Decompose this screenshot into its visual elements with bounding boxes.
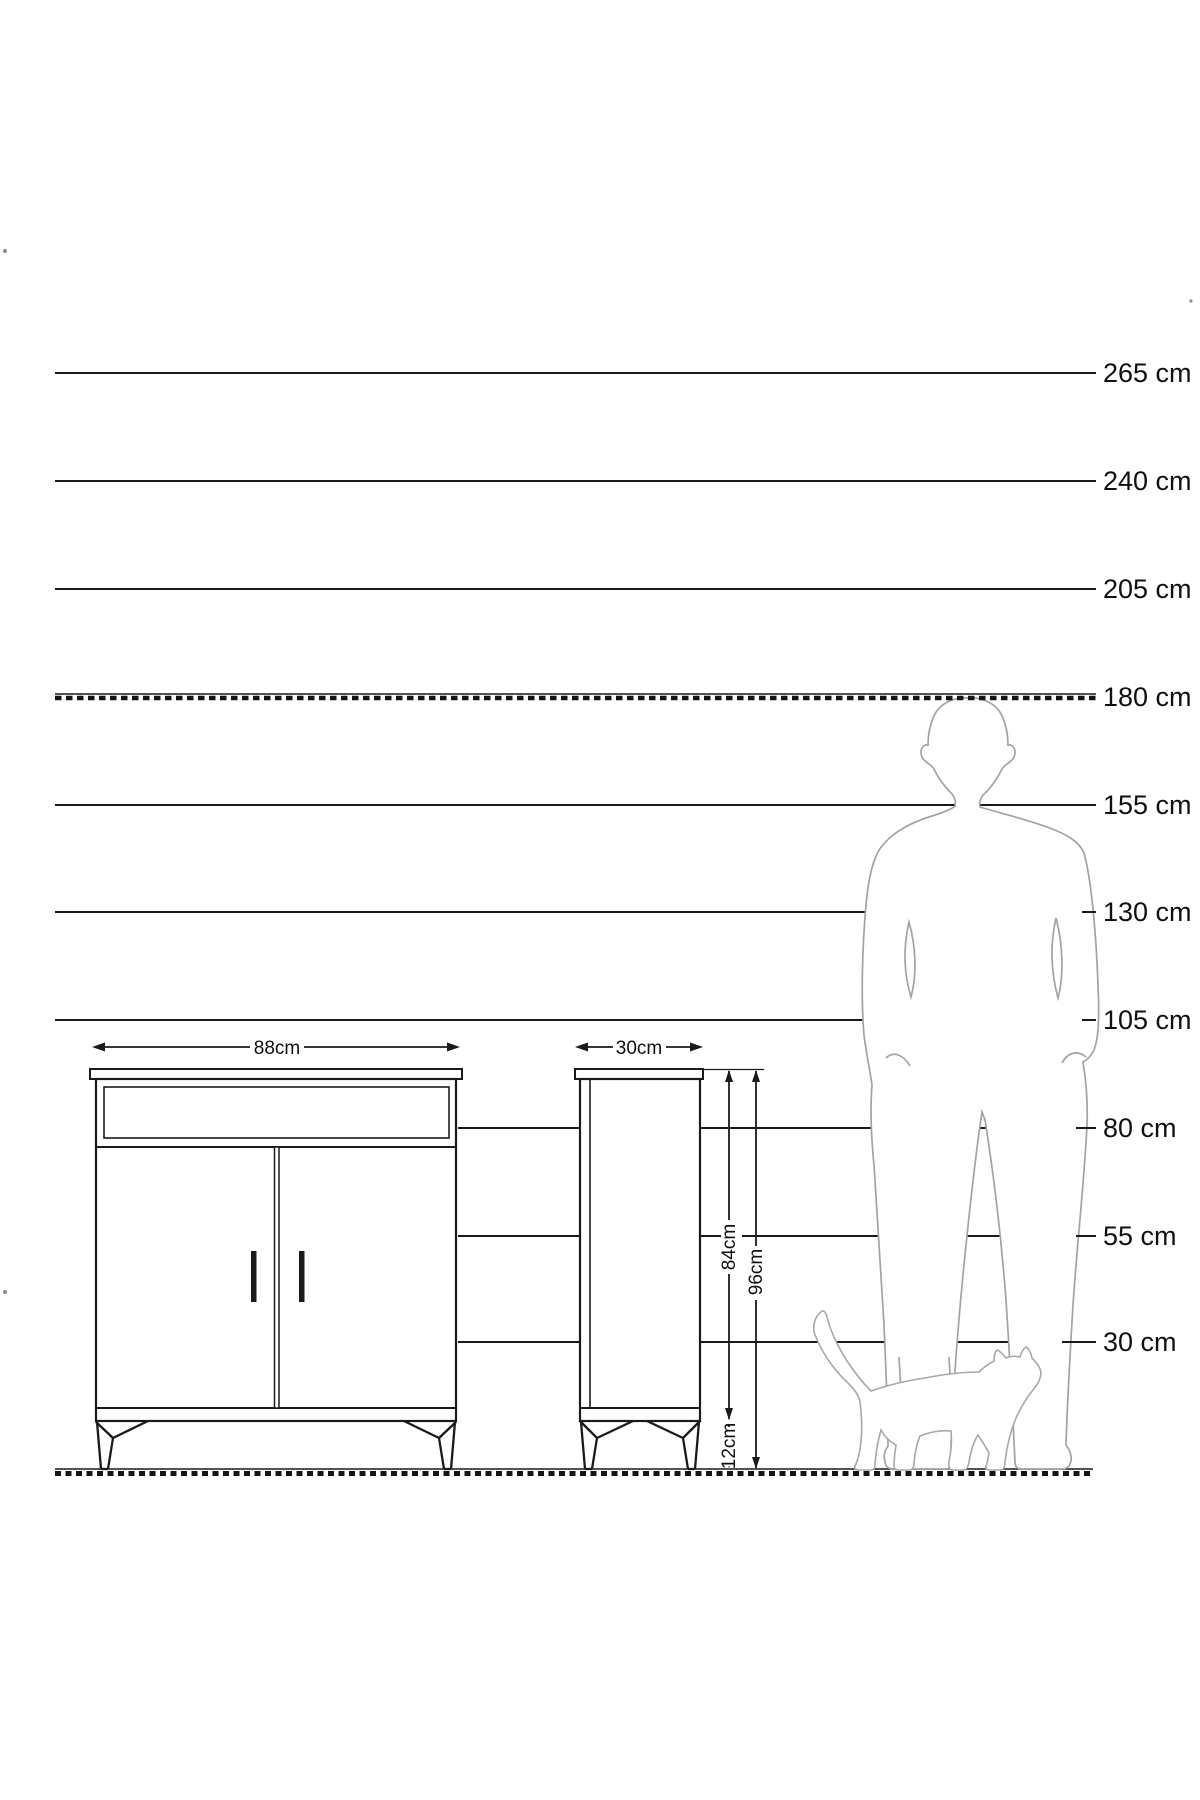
arrow-up-icon	[752, 1070, 760, 1082]
side-body-height-label: 84cm	[719, 1224, 740, 1270]
front-legs	[96, 1421, 456, 1469]
side-legs	[581, 1421, 699, 1469]
cabinet-side-view	[575, 1043, 703, 1470]
man-outline	[862, 698, 1098, 1469]
cabinet-front-view	[90, 1043, 462, 1470]
arrow-right-icon	[690, 1043, 703, 1052]
ruler-line-180	[55, 694, 1096, 698]
arrow-down-icon	[725, 1408, 733, 1420]
ruler-label-30: 30 cm	[1103, 1327, 1177, 1357]
side-leg-height-label: 12cm	[719, 1423, 740, 1469]
arrow-up-icon	[725, 1070, 733, 1082]
ruler-label-155: 155 cm	[1103, 790, 1192, 820]
door-handle-right	[299, 1251, 305, 1302]
arrow-left-icon	[92, 1043, 105, 1052]
front-door-divider	[275, 1147, 280, 1408]
man-silhouette	[862, 698, 1098, 1469]
ruler-labels: 265 cm 240 cm 205 cm 180 cm 155 cm 130 c…	[1103, 358, 1192, 1357]
front-open-shelf	[104, 1087, 449, 1138]
diagram-canvas: 265 cm 240 cm 205 cm 180 cm 155 cm 130 c…	[0, 0, 1200, 1800]
arrow-right-icon	[447, 1043, 460, 1052]
front-width-label: 88cm	[254, 1038, 300, 1059]
ruler-label-130: 130 cm	[1103, 897, 1192, 927]
ruler-label-55: 55 cm	[1103, 1221, 1177, 1251]
front-top-board	[90, 1069, 462, 1079]
side-body	[580, 1079, 700, 1421]
ruler-label-265: 265 cm	[1103, 358, 1192, 388]
door-handle-left	[251, 1251, 257, 1302]
height-scale-diagram: 265 cm 240 cm 205 cm 180 cm 155 cm 130 c…	[0, 0, 1200, 1800]
ruler-label-180: 180 cm	[1103, 682, 1192, 712]
side-width-label: 30cm	[616, 1038, 662, 1059]
ruler-label-205: 205 cm	[1103, 574, 1192, 604]
ruler-label-105: 105 cm	[1103, 1005, 1192, 1035]
arrow-left-icon	[575, 1043, 588, 1052]
ruler-label-240: 240 cm	[1103, 466, 1192, 496]
side-top-board	[575, 1069, 703, 1079]
ruler-label-80: 80 cm	[1103, 1113, 1177, 1143]
side-total-height-label: 96cm	[746, 1249, 767, 1295]
arrow-down-icon	[752, 1457, 760, 1469]
